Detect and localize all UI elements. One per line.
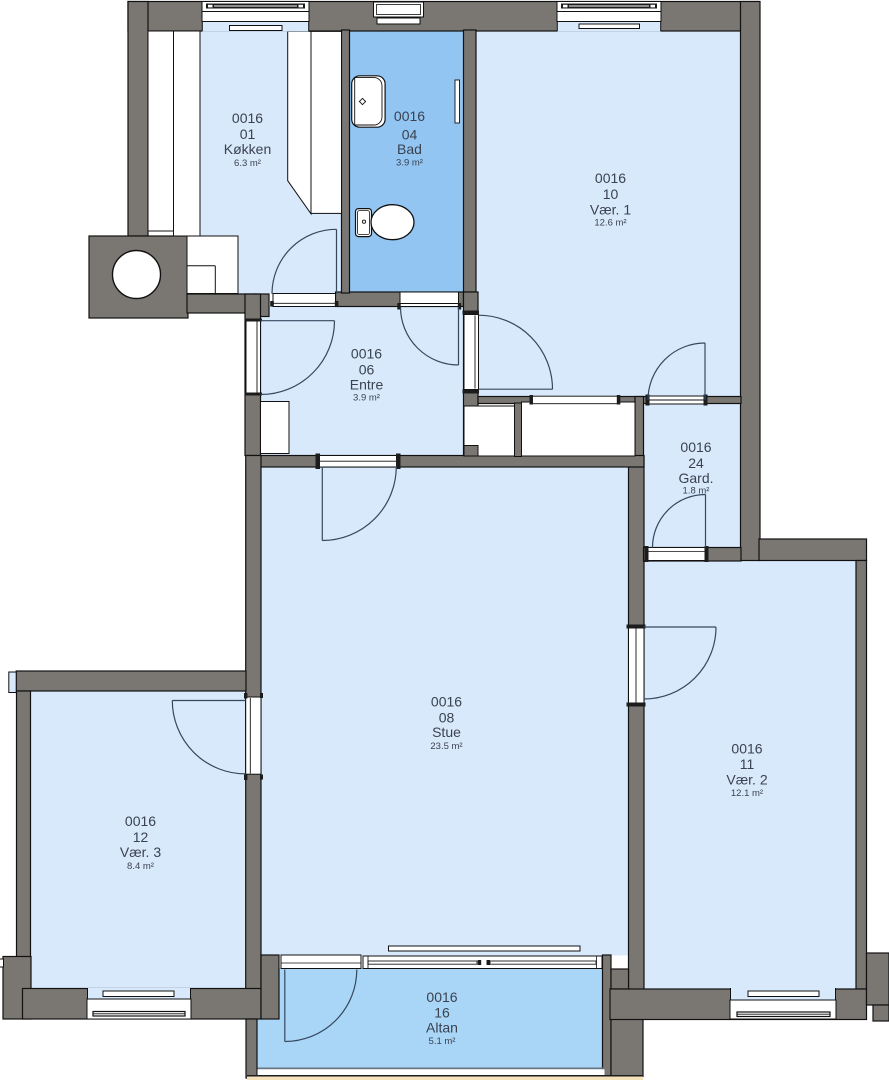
svg-text:1.8 m²: 1.8 m²	[683, 485, 710, 496]
svg-text:8.4 m²: 8.4 m²	[127, 861, 154, 872]
svg-text:10: 10	[603, 186, 619, 202]
svg-text:12.1 m²: 12.1 m²	[731, 788, 763, 799]
svg-text:01: 01	[240, 126, 256, 142]
svg-text:5.1 m²: 5.1 m²	[429, 1036, 456, 1047]
svg-text:11: 11	[740, 756, 755, 772]
svg-text:3.9 m²: 3.9 m²	[396, 157, 423, 168]
svg-text:0016: 0016	[680, 439, 711, 455]
svg-text:0016: 0016	[426, 989, 457, 1005]
svg-text:24: 24	[688, 455, 704, 471]
svg-text:12.6 m²: 12.6 m²	[594, 218, 626, 229]
svg-text:0016: 0016	[232, 110, 263, 126]
svg-text:Bad: Bad	[397, 141, 422, 157]
svg-text:23.5 m²: 23.5 m²	[430, 741, 462, 752]
svg-text:0016: 0016	[731, 741, 762, 757]
svg-text:Vær. 3: Vær. 3	[120, 844, 161, 860]
svg-text:16: 16	[434, 1005, 450, 1021]
svg-text:3.9 m²: 3.9 m²	[353, 393, 380, 404]
svg-text:Gard.: Gard.	[678, 470, 713, 486]
svg-text:0016: 0016	[595, 170, 626, 186]
svg-text:0016: 0016	[125, 813, 156, 829]
svg-text:06: 06	[359, 362, 375, 378]
svg-text:Vær. 2: Vær. 2	[726, 772, 767, 788]
svg-text:6.3 m²: 6.3 m²	[234, 158, 261, 169]
svg-text:Altan: Altan	[426, 1020, 458, 1036]
svg-text:Køkken: Køkken	[224, 141, 271, 157]
svg-text:12: 12	[133, 829, 149, 845]
svg-text:0016: 0016	[431, 693, 462, 709]
svg-text:0016: 0016	[351, 346, 382, 362]
svg-text:Entre: Entre	[350, 377, 384, 393]
svg-text:Stue: Stue	[432, 724, 461, 740]
svg-text:0016: 0016	[394, 108, 425, 124]
svg-text:Vær. 1: Vær. 1	[590, 202, 631, 218]
